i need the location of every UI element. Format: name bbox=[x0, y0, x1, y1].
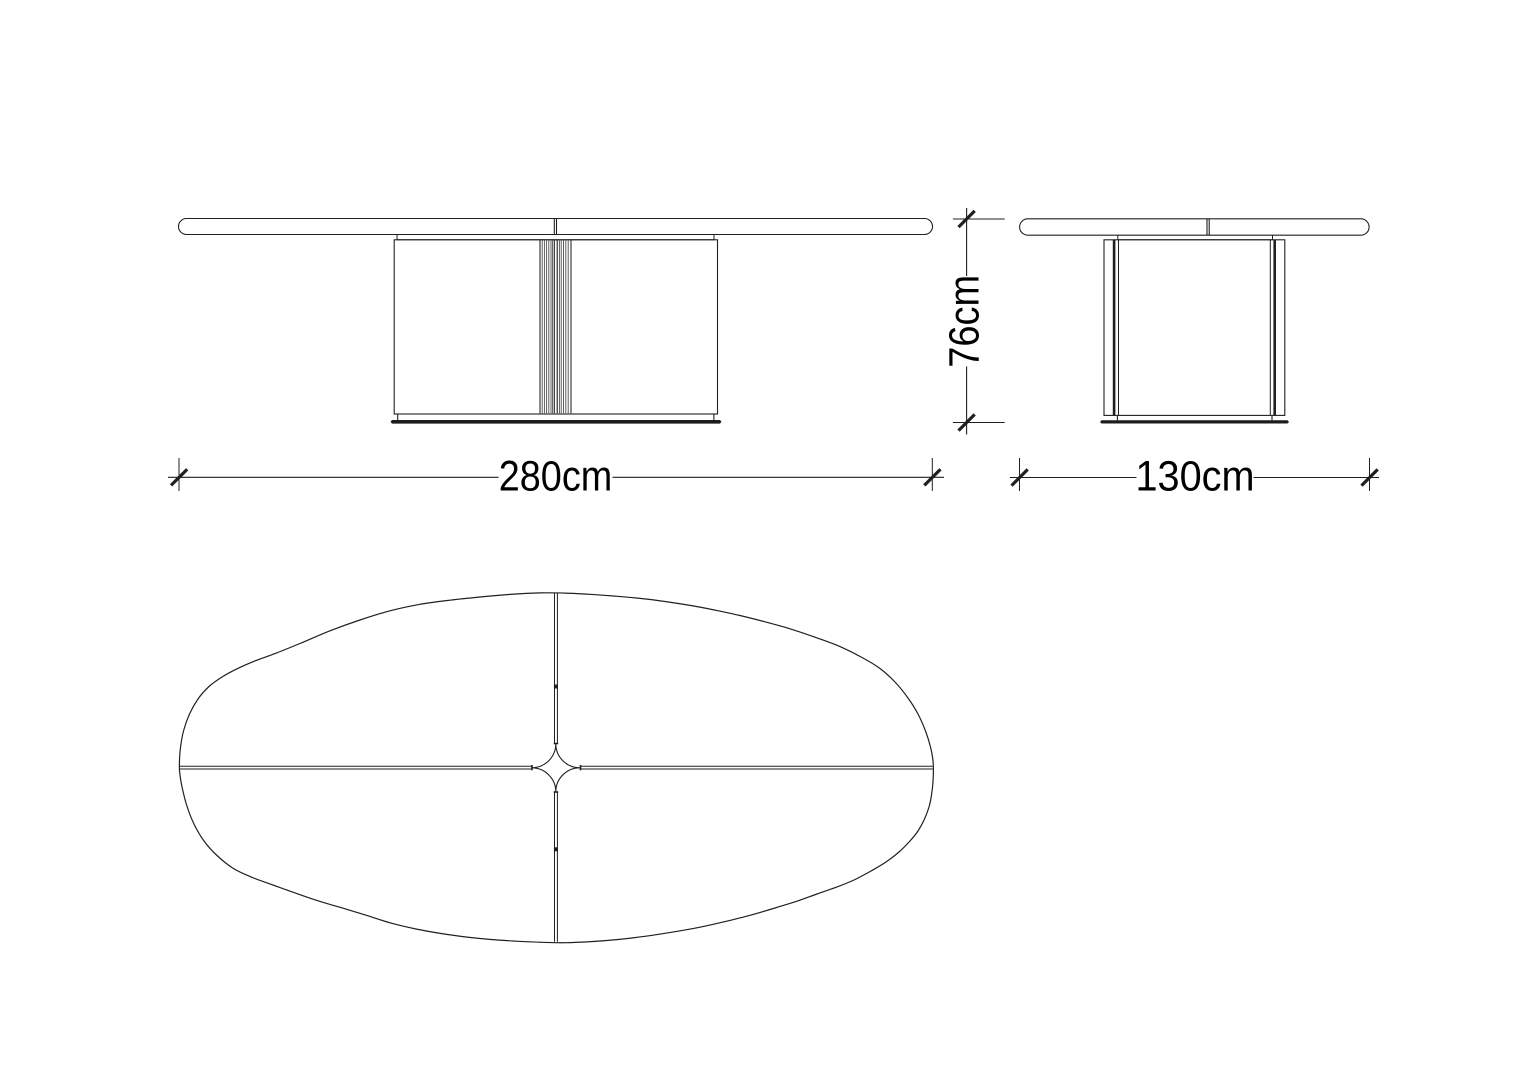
svg-text:130cm: 130cm bbox=[1136, 454, 1255, 501]
svg-text:76cm: 76cm bbox=[942, 275, 989, 368]
svg-text:280cm: 280cm bbox=[499, 454, 613, 501]
